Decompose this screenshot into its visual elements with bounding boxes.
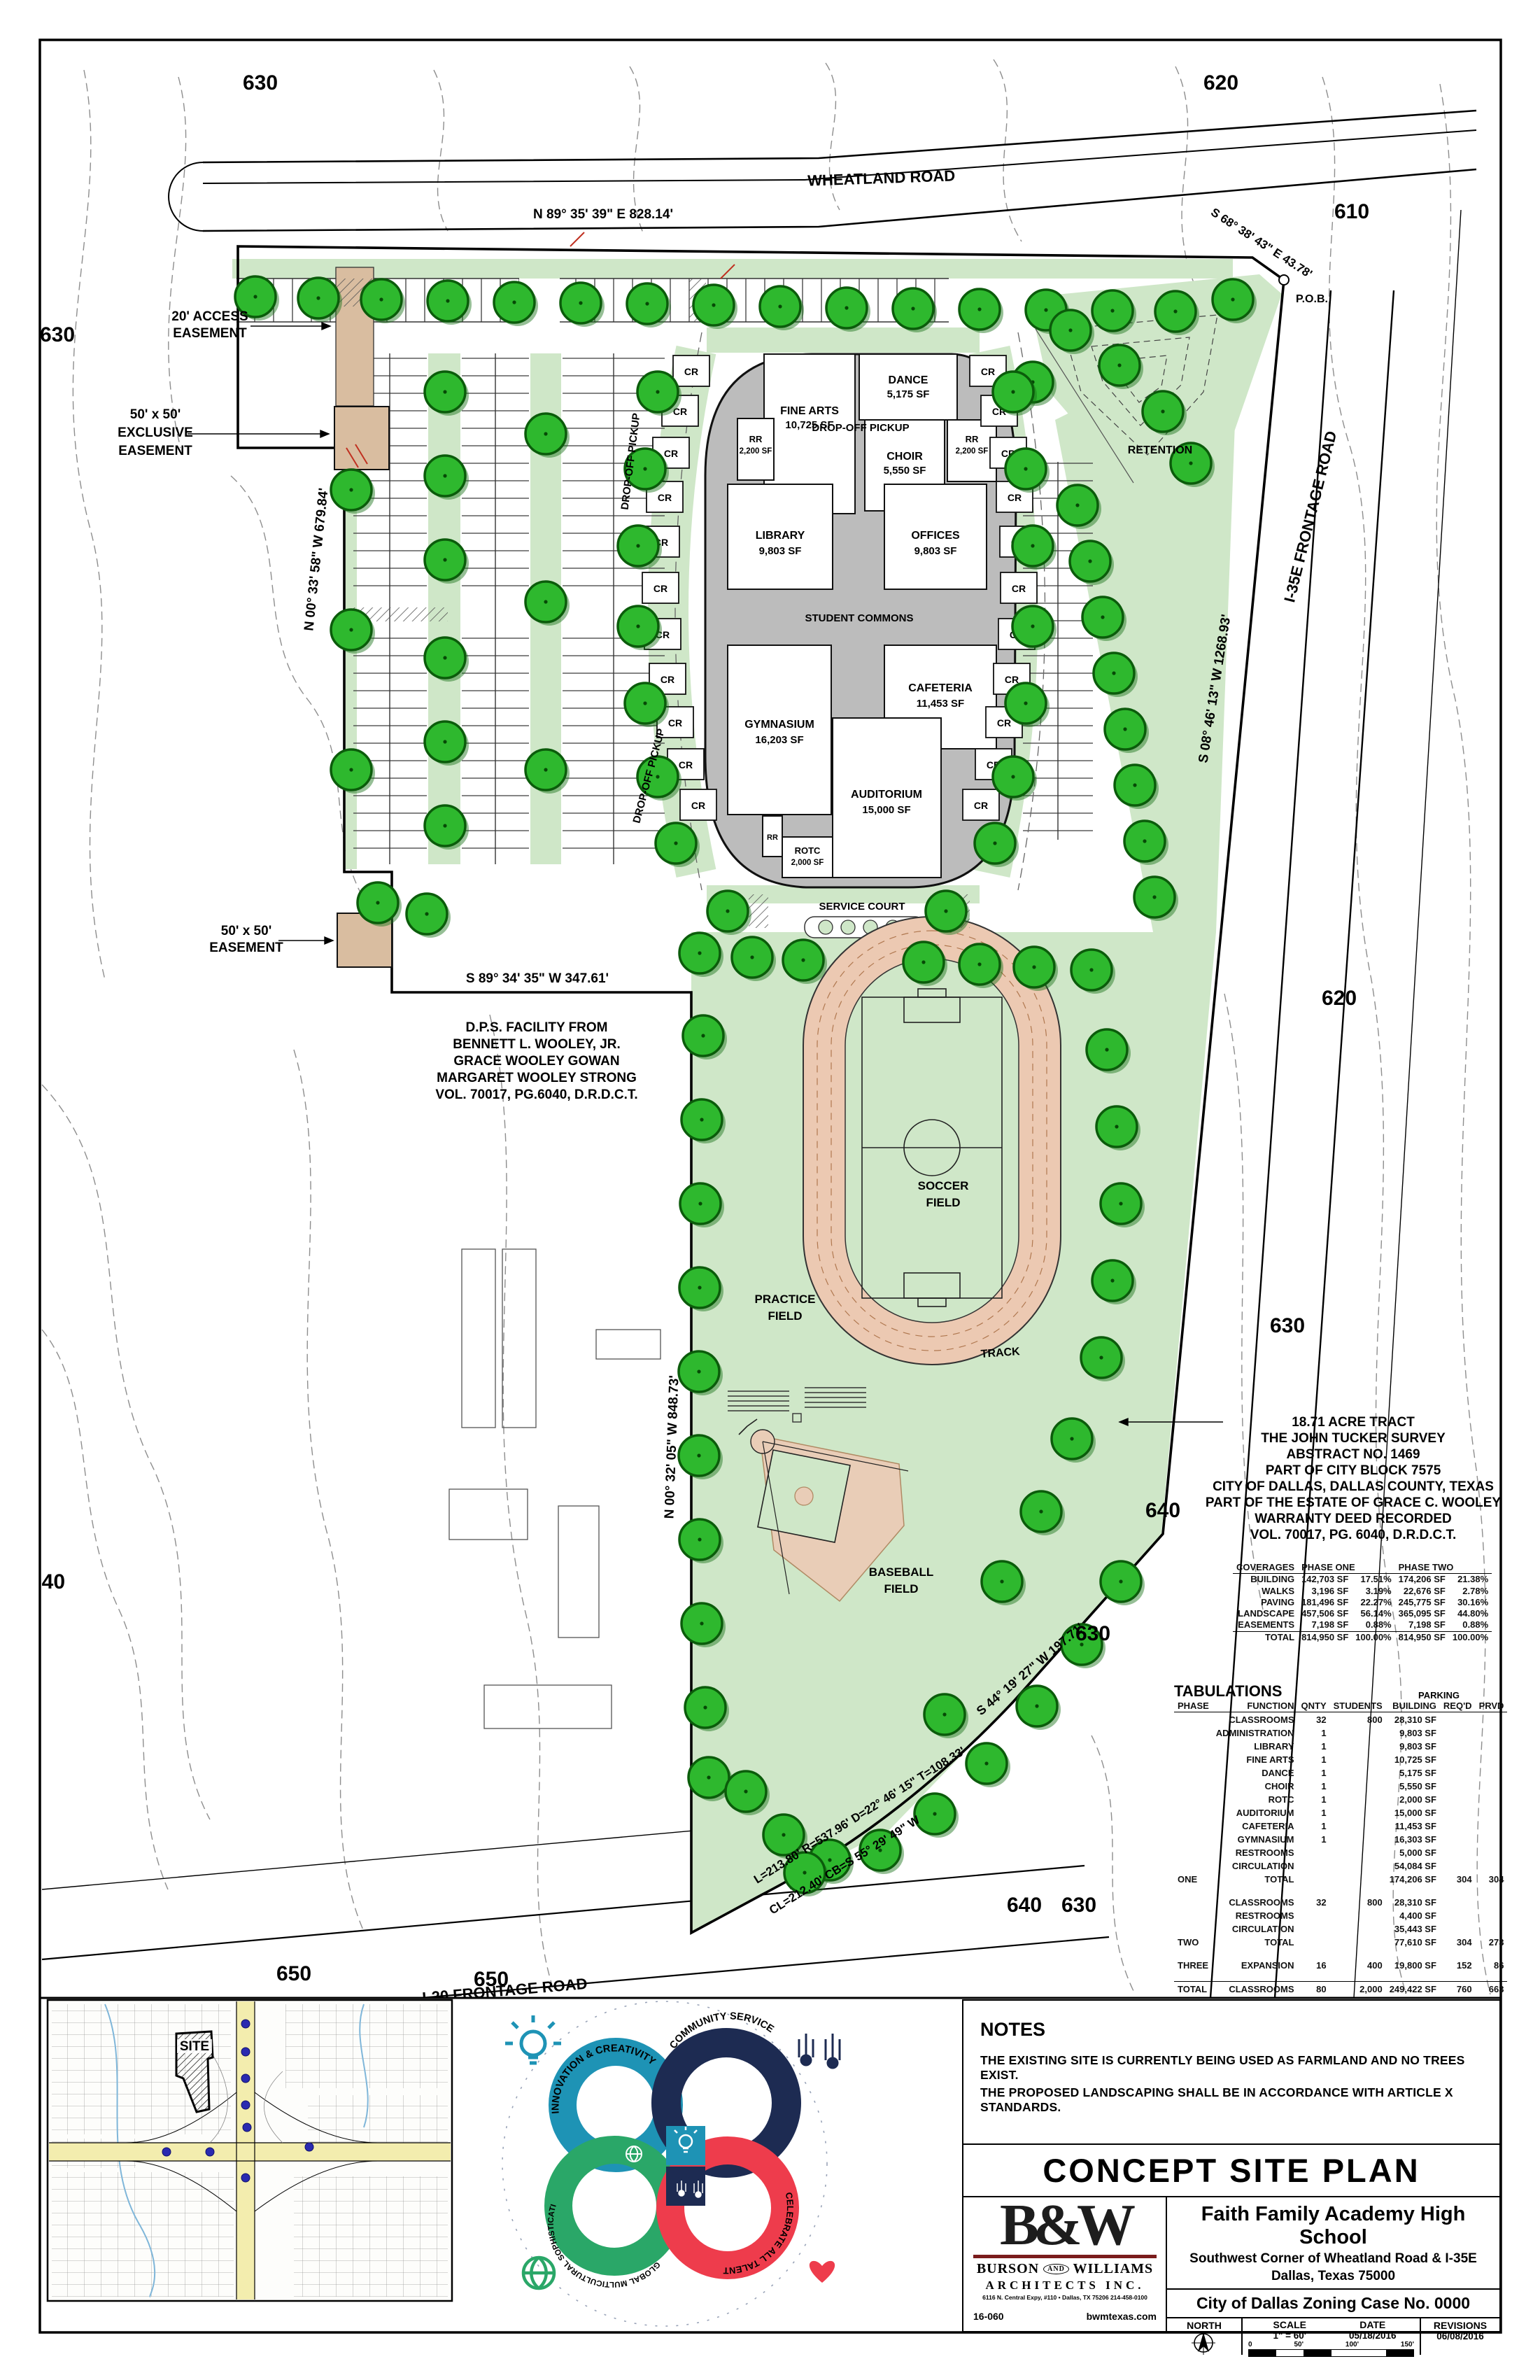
svg-text:CR: CR: [679, 759, 693, 770]
svg-text:CR: CR: [654, 583, 667, 594]
svg-text:PART OF THE ESTATE OF GRACE C.: PART OF THE ESTATE OF GRACE C. WOOLEY: [1206, 1495, 1502, 1510]
phase-three-row: THREE EXPANSION 16 400 19,800 SF 152 86: [1174, 1958, 1507, 1971]
svg-text:CELEBRATE ALL TALENTS: CELEBRATE ALL TALENTS: [0, 0, 796, 2276]
library-label: LIBRARY: [756, 530, 805, 542]
tabulation-row: RESTROOMS 5,000 SF: [1174, 1845, 1507, 1859]
svg-text:CR: CR: [684, 366, 698, 377]
svg-text:EXCLUSIVE: EXCLUSIVE: [118, 425, 193, 440]
rotc-label: ROTC: [795, 845, 821, 856]
firm-name-right: WILLIAMS: [1073, 2261, 1153, 2276]
svg-text:EASEMENT: EASEMENT: [209, 941, 283, 955]
svg-text:620: 620: [1322, 987, 1357, 1010]
tabulation-row: RESTROOMS 4,400 SF: [1174, 1908, 1507, 1922]
svg-text:9,803 SF: 9,803 SF: [759, 545, 802, 557]
coverages-row: BUILDING 142,703 SF 17.51% 174,206 SF 21…: [1233, 1574, 1492, 1586]
zoning-case: City of Dallas Zoning Case No. 0000: [1167, 2288, 1499, 2318]
svg-text:CR: CR: [668, 717, 682, 728]
svg-text:650: 650: [276, 1962, 311, 1985]
date-value: 05/18/2016: [1331, 2330, 1415, 2341]
firm-initials: B&W: [963, 2197, 1166, 2253]
pob-marker: [1279, 275, 1289, 285]
coverages-table: COVERAGES PHASE ONE PHASE TWO BUILDING 1…: [1233, 1562, 1492, 1643]
inset-location-map: SITE: [48, 2000, 452, 2301]
scalebar: [1248, 2349, 1414, 2357]
svg-text:630: 630: [243, 71, 278, 94]
building-rotc: [782, 837, 833, 878]
coverages-total-row: TOTAL 814,950 SF 100.00% 814,950 SF 100.…: [1233, 1631, 1492, 1643]
svg-text:EASEMENT: EASEMENT: [118, 444, 192, 458]
svg-text:VOL. 70017, PG. 6040, D.R.D.C.: VOL. 70017, PG. 6040, D.R.D.C.T.: [1250, 1528, 1457, 1542]
svg-text:640: 640: [1145, 1499, 1180, 1522]
svg-text:CR: CR: [1012, 583, 1026, 594]
dps-note: D.P.S. FACILITY FROM BENNETT L. WOOLEY, …: [435, 1020, 637, 1102]
svg-text:5,175 SF: 5,175 SF: [887, 388, 930, 400]
tabulation-row: GYMNASIUM 1 16,303 SF: [1174, 1832, 1507, 1845]
choir-label: CHOIR: [886, 451, 923, 463]
revisions-value: 06/08/2016: [1421, 2331, 1499, 2342]
existing-structures: [449, 1249, 660, 1728]
svg-text:2,000 SF: 2,000 SF: [791, 859, 824, 867]
tabulation-row: DANCE 1 5,175 SF: [1174, 1766, 1507, 1779]
tabulation-row: FINE ARTS 1 10,725 SF: [1174, 1752, 1507, 1766]
soccer-field-label: SOCCER: [918, 1179, 969, 1192]
bearing-west-north: N 00° 33' 58" W 679.84': [302, 487, 331, 631]
cafeteria-label: CAFETERIA: [908, 682, 973, 694]
grand-total-row: TOTAL CLASSROOMS 80 2,000 249,422 SF 760…: [1174, 1982, 1507, 1996]
scale-value: 1" = 60': [1248, 2330, 1331, 2341]
bearing-north: N 89° 35' 39" E 828.14': [533, 207, 673, 222]
north-label: NORTH: [1167, 2320, 1241, 2331]
tabulation-row: ROTC 1 2,000 SF: [1174, 1792, 1507, 1805]
svg-text:18.71 ACRE TRACT: 18.71 ACRE TRACT: [1292, 1415, 1415, 1430]
coverages-row: EASEMENTS 7,198 SF 0.88% 7,198 SF 0.88%: [1233, 1619, 1492, 1631]
offices-label: OFFICES: [911, 530, 960, 542]
heart-icon-center: [629, 2187, 640, 2196]
svg-text:CITY OF DALLAS, DALLAS COUNTY,: CITY OF DALLAS, DALLAS COUNTY, TEXAS: [1213, 1479, 1494, 1494]
gymnasium-label: GYMNASIUM: [744, 719, 814, 731]
svg-text:640: 640: [1007, 1894, 1042, 1917]
job-number: 16-060: [973, 2311, 1004, 2322]
svg-text:640: 640: [30, 1570, 65, 1593]
hands-icon-outer: [799, 2034, 840, 2068]
svg-text:11,453 SF: 11,453 SF: [917, 698, 964, 710]
coverages-row: LANDSCAPE 457,506 SF 56.14% 365,095 SF 4…: [1233, 1608, 1492, 1619]
bearing-west-south: N 00° 32' 05" W 848.73': [662, 1375, 681, 1519]
svg-text:630: 630: [1270, 1314, 1305, 1337]
project-address-2: Dallas, Texas 75000: [1167, 2269, 1499, 2284]
project-address-1: Southwest Corner of Wheatland Road & I-3…: [1167, 2251, 1499, 2267]
notes-line-1: THE EXISTING SITE IS CURRENTLY BEING USE…: [980, 2053, 1499, 2083]
firm-name-left: BURSON: [977, 2261, 1039, 2276]
coverages-row: WALKS 3,196 SF 3.19% 22,676 SF 2.78%: [1233, 1586, 1492, 1597]
north-arrow-icon: [1167, 2331, 1240, 2355]
project-block: Faith Family Academy High School Southwe…: [1166, 2196, 1501, 2332]
date-label: DATE: [1331, 2319, 1415, 2330]
svg-text:WARRANTY DEED RECORDED: WARRANTY DEED RECORDED: [1255, 1512, 1452, 1526]
tabulation-row: LIBRARY 1 9,803 SF: [1174, 1739, 1507, 1752]
retention-label: RETENTION: [1128, 444, 1192, 456]
phase-one-total-row: ONE TOTAL 174,206 SF 304 304: [1174, 1872, 1507, 1885]
svg-text:CR: CR: [981, 366, 995, 377]
baseball-field-label: BASEBALL: [869, 1565, 934, 1579]
building-dance: [859, 354, 957, 420]
svg-text:2,200 SF: 2,200 SF: [740, 447, 772, 456]
svg-text:630: 630: [1061, 1894, 1096, 1917]
svg-text:PART OF CITY BLOCK 7575: PART OF CITY BLOCK 7575: [1266, 1463, 1441, 1478]
svg-text:610: 610: [1334, 200, 1369, 223]
svg-text:CR: CR: [658, 492, 672, 503]
svg-text:FIELD: FIELD: [926, 1196, 960, 1209]
svg-text:D.P.S. FACILITY FROM: D.P.S. FACILITY FROM: [465, 1020, 607, 1035]
tabulations-table: TABULATIONS PARKING PHASE FUNCTION QNTY …: [1174, 1682, 1488, 1995]
sheet-title: CONCEPT SITE PLAN: [962, 2143, 1501, 2197]
notes-line-2: THE PROPOSED LANDSCAPING SHALL BE IN ACC…: [980, 2085, 1499, 2115]
tabulation-row: ADMINISTRATION 1 9,803 SF: [1174, 1726, 1507, 1739]
practice-field-label: PRACTICE: [755, 1293, 816, 1306]
firm-address: 6116 N. Central Expy, #110 • Dallas, TX …: [963, 2294, 1166, 2301]
firm-block: B&W BURSON AND WILLIAMS ARCHITECTS INC. …: [962, 2196, 1168, 2332]
tabulation-row: AUDITORIUM 1 15,000 SF: [1174, 1805, 1507, 1819]
svg-text:GRACE WOOLEY GOWAN: GRACE WOOLEY GOWAN: [453, 1054, 619, 1069]
rr-small-label: RR: [767, 833, 778, 842]
bearing-mid: S 89° 34' 35" W 347.61': [466, 971, 609, 986]
svg-text:CR: CR: [1008, 492, 1022, 503]
tabulations-title: TABULATIONS: [1174, 1682, 1282, 1700]
dropoff-label-top: DROP-OFF PICKUP: [812, 422, 909, 434]
svg-text:5,550 SF: 5,550 SF: [884, 465, 926, 477]
access-easement-label: 20' AC­CESS: [171, 309, 248, 324]
svg-text:VOL. 70017, PG.6040, D.R.D.C.T: VOL. 70017, PG.6040, D.R.D.C.T.: [435, 1087, 637, 1102]
svg-text:CR: CR: [1005, 674, 1019, 685]
firm-name-and: AND: [1043, 2264, 1069, 2274]
tabulation-row: CHOIR 1 5,550 SF: [1174, 1779, 1507, 1792]
svg-text:CR: CR: [997, 717, 1011, 728]
svg-text:GLOBAL MULTICULTURAL SOPHISTIC: GLOBAL MULTICULTURAL SOPHISTICATION: [0, 0, 661, 2288]
svg-text:ABSTRACT NO. 1469: ABSTRACT NO. 1469: [1286, 1447, 1420, 1462]
rr-left-label: RR: [749, 434, 763, 444]
tabulation-row: CIRCULATION 54,084 SF: [1174, 1859, 1507, 1872]
svg-text:MARGARET WOOLEY STRONG: MARGARET WOOLEY STRONG: [437, 1071, 637, 1085]
svg-text:630: 630: [1075, 1622, 1110, 1645]
north-cell: NORTH: [1167, 2318, 1243, 2355]
service-court-label: SERVICE COURT: [819, 901, 905, 913]
exclusive-easement-label: 50' x 50': [130, 407, 181, 422]
lightbulb-icon-outer: [505, 2015, 561, 2063]
globe-icon-outer: [523, 2258, 554, 2288]
heart-icon-outer: [810, 2261, 835, 2283]
firm-website: bwmtexas.com: [1087, 2311, 1157, 2322]
tabulation-row: CAFETERIA 1 11,453 SF: [1174, 1819, 1507, 1832]
svg-text:620: 620: [1203, 71, 1238, 94]
svg-text:CR: CR: [691, 800, 705, 811]
svg-text:CR: CR: [974, 800, 988, 811]
tabulation-row: CLASSROOMS 32 800 28,310 SF: [1174, 1712, 1507, 1726]
coverages-row: PAVING 181,496 SF 22.27% 245,775 SF 30.1…: [1233, 1597, 1492, 1608]
exclusive-easement-square: [334, 407, 389, 470]
pob-label: P.O.B.: [1296, 293, 1328, 305]
svg-text:15,000 SF: 15,000 SF: [862, 804, 910, 816]
dance-label: DANCE: [889, 374, 928, 386]
revisions-cell: REVISIONS 06/08/2016: [1421, 2318, 1499, 2355]
student-commons-label: STUDENT COMMONS: [805, 612, 914, 624]
svg-text:2,200 SF: 2,200 SF: [956, 447, 989, 456]
tabulation-row: CIRCULATION 35,443 SF: [1174, 1922, 1507, 1935]
svg-text:9,803 SF: 9,803 SF: [914, 545, 957, 557]
scale-label: SCALE: [1248, 2319, 1331, 2330]
phase-two-total-row: TWO TOTAL 77,610 SF 304 273: [1174, 1935, 1507, 1948]
svg-text:THE JOHN TUCKER SURVEY: THE JOHN TUCKER SURVEY: [1261, 1431, 1446, 1446]
svg-text:EASEMENT: EASEMENT: [173, 326, 247, 341]
tabulation-row: CLASSROOMS 32 800 28,310 SF: [1174, 1895, 1507, 1908]
svg-text:630: 630: [40, 323, 75, 346]
svg-text:16,203 SF: 16,203 SF: [755, 734, 803, 746]
site-plan-sheet: FINE ARTS 10,725 SF DANCE 5,175 SF RR 2,…: [0, 0, 1540, 2380]
inset-site-label: SITE: [180, 2039, 209, 2054]
scale-date-cell: SCALE 1" = 60' DATE 05/18/2016 050' 100'…: [1243, 2318, 1421, 2355]
svg-text:BENNETT L. WOOLEY, JR.: BENNETT L. WOOLEY, JR.: [453, 1037, 621, 1052]
project-name: Faith Family Academy High School: [1167, 2203, 1499, 2249]
fine-arts-label: FINE ARTS: [780, 405, 839, 417]
svg-text:CR: CR: [664, 448, 678, 459]
tabulations-header: PHASE FUNCTION QNTY STUDENTS BUILDING RE…: [1174, 1700, 1507, 1712]
svg-text:FIELD: FIELD: [768, 1309, 802, 1323]
svg-text:CR: CR: [660, 674, 674, 685]
svg-text:FIELD: FIELD: [884, 1582, 918, 1596]
easement-south-label: 50' x 50': [221, 924, 271, 938]
auditorium-label: AUDITORIUM: [851, 789, 922, 801]
notes-box: NOTES THE EXISTING SITE IS CURRENTLY BEI…: [962, 1999, 1501, 2145]
svg-text:650: 650: [474, 1968, 509, 1991]
firm-line2: ARCHITECTS INC.: [963, 2279, 1166, 2293]
rr-right-label: RR: [966, 434, 979, 444]
notes-title: NOTES: [980, 2019, 1499, 2041]
revisions-label: REVISIONS: [1421, 2320, 1499, 2331]
scalebar-ticks: 050' 100'150': [1248, 2341, 1414, 2349]
